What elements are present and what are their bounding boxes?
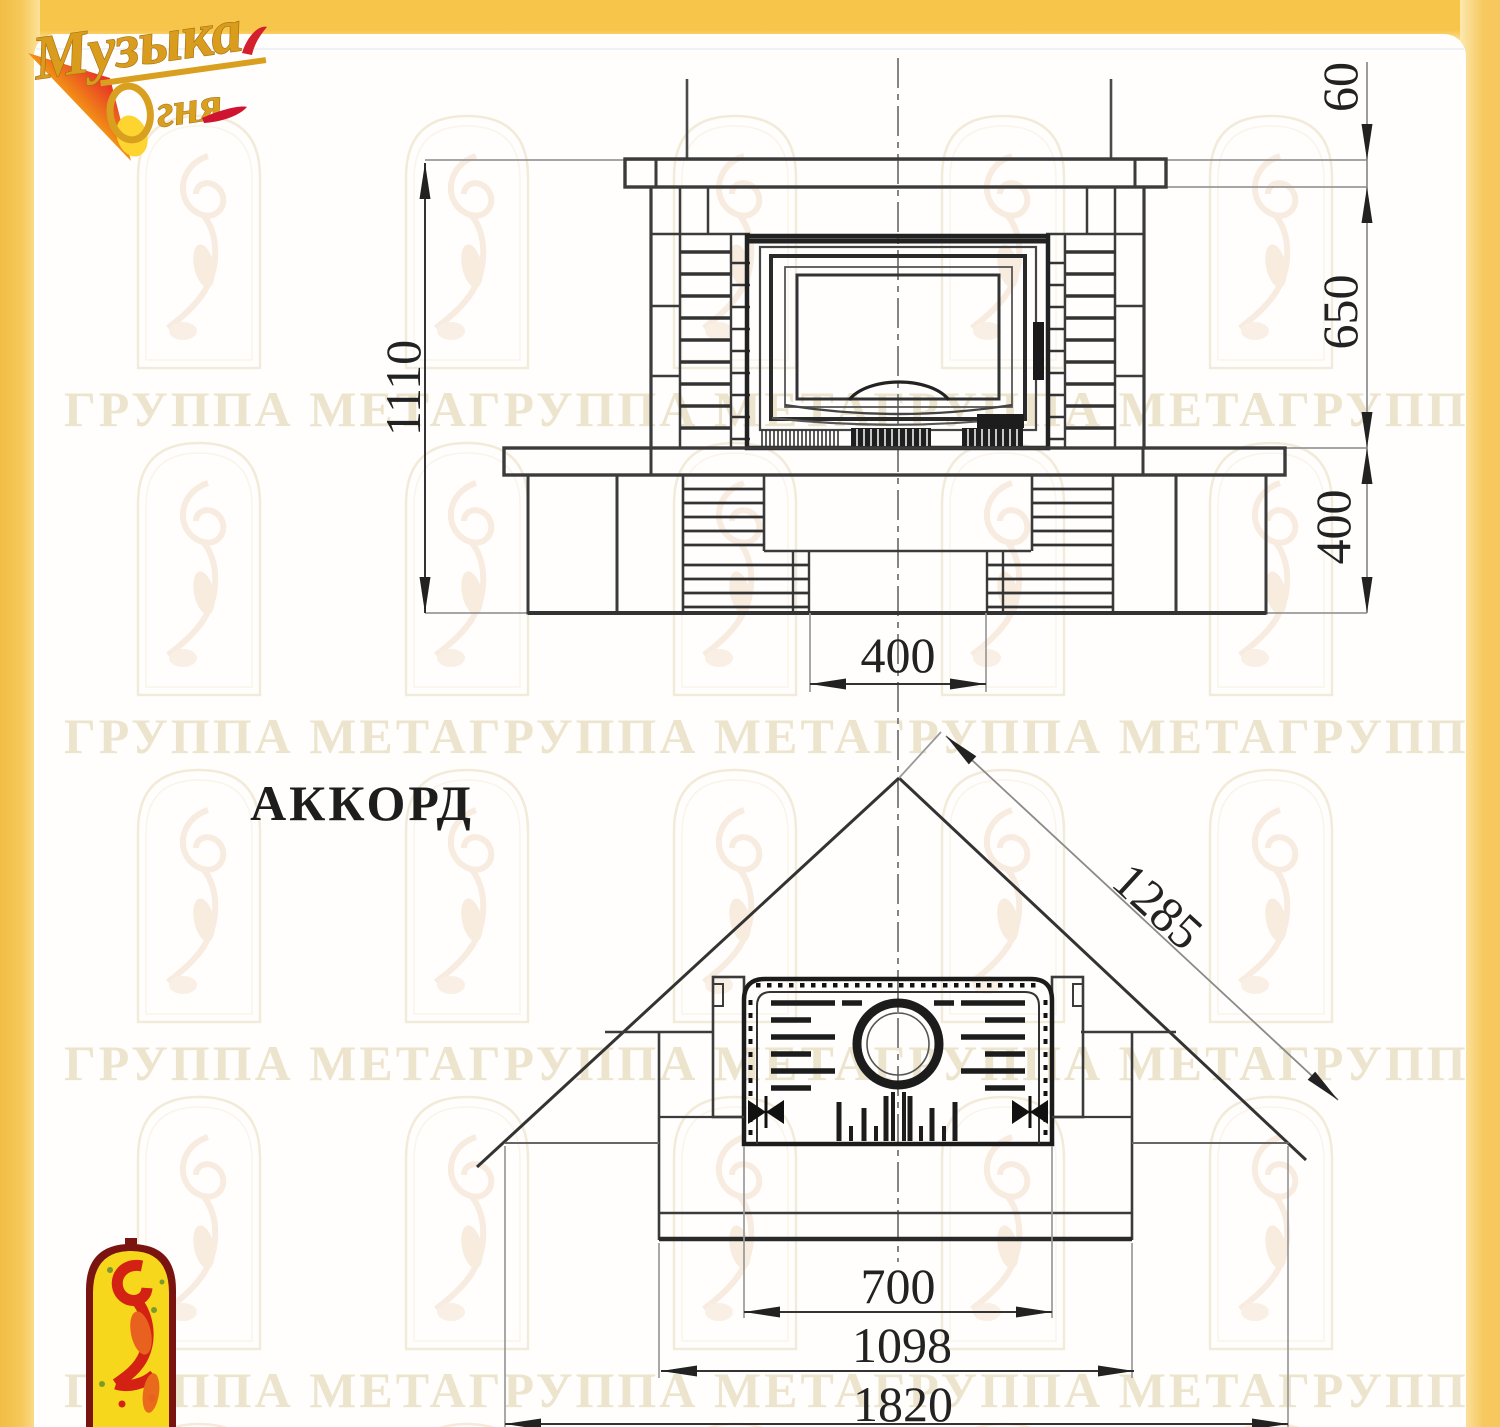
svg-text:гня: гня xyxy=(153,77,226,137)
